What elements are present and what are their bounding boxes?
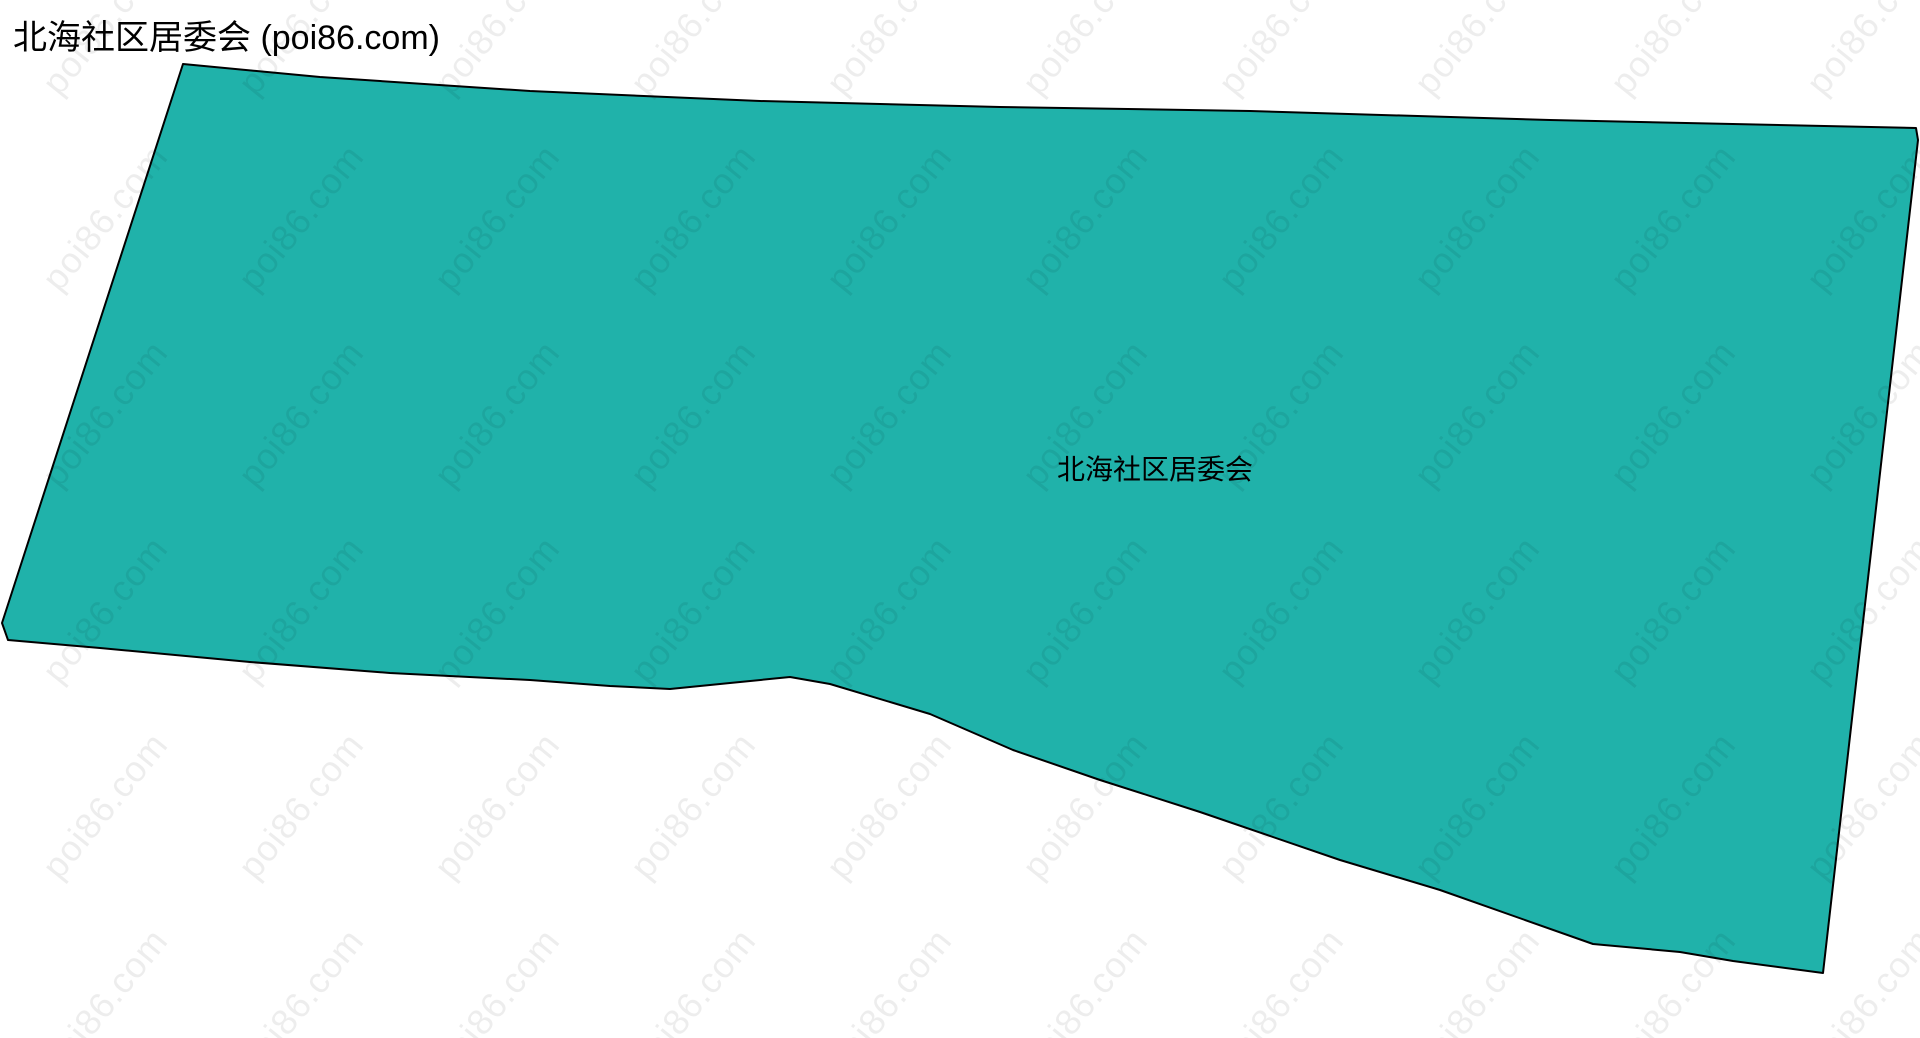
region-label: 北海社区居委会	[1057, 448, 1253, 488]
page-title: 北海社区居委会 (poi86.com)	[13, 10, 440, 59]
boundary-map	[0, 0, 1920, 1038]
region-polygon	[2, 64, 1918, 973]
map-canvas: poi86.compoi86.compoi86.compoi86.compoi8…	[0, 0, 1920, 1038]
